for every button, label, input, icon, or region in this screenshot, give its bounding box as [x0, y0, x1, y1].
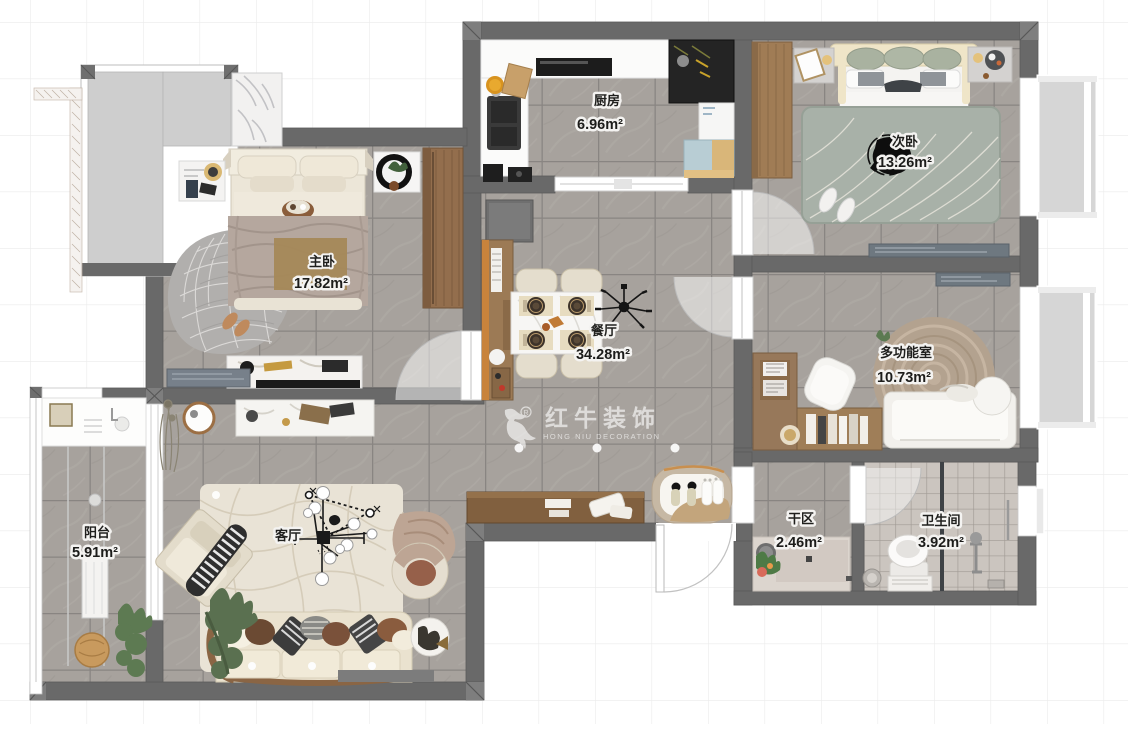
svg-text:次卧: 次卧 [892, 134, 918, 149]
svg-text:34.28m²: 34.28m² [576, 347, 630, 363]
svg-text:5.91m²: 5.91m² [72, 545, 118, 561]
svg-text:红牛装饰: 红牛装饰 [545, 405, 661, 431]
svg-text:10.73m²: 10.73m² [877, 370, 931, 386]
svg-text:3.92m²: 3.92m² [918, 535, 964, 551]
svg-text:多功能室: 多功能室 [880, 345, 932, 360]
svg-text:干区: 干区 [788, 511, 814, 526]
svg-text:卫生间: 卫生间 [921, 513, 960, 528]
svg-text:2.46m²: 2.46m² [776, 535, 822, 551]
svg-text:厨房: 厨房 [594, 93, 620, 108]
svg-text:HONG NIU DECORATION: HONG NIU DECORATION [543, 432, 661, 441]
svg-text:餐厅: 餐厅 [590, 323, 617, 338]
svg-text:主卧: 主卧 [309, 254, 335, 269]
svg-text:R: R [523, 410, 528, 417]
svg-text:客厅: 客厅 [275, 528, 301, 543]
svg-text:阳台: 阳台 [84, 525, 110, 540]
svg-text:13.26m²: 13.26m² [878, 155, 932, 171]
svg-text:17.82m²: 17.82m² [294, 276, 348, 292]
svg-text:6.96m²: 6.96m² [577, 117, 623, 133]
